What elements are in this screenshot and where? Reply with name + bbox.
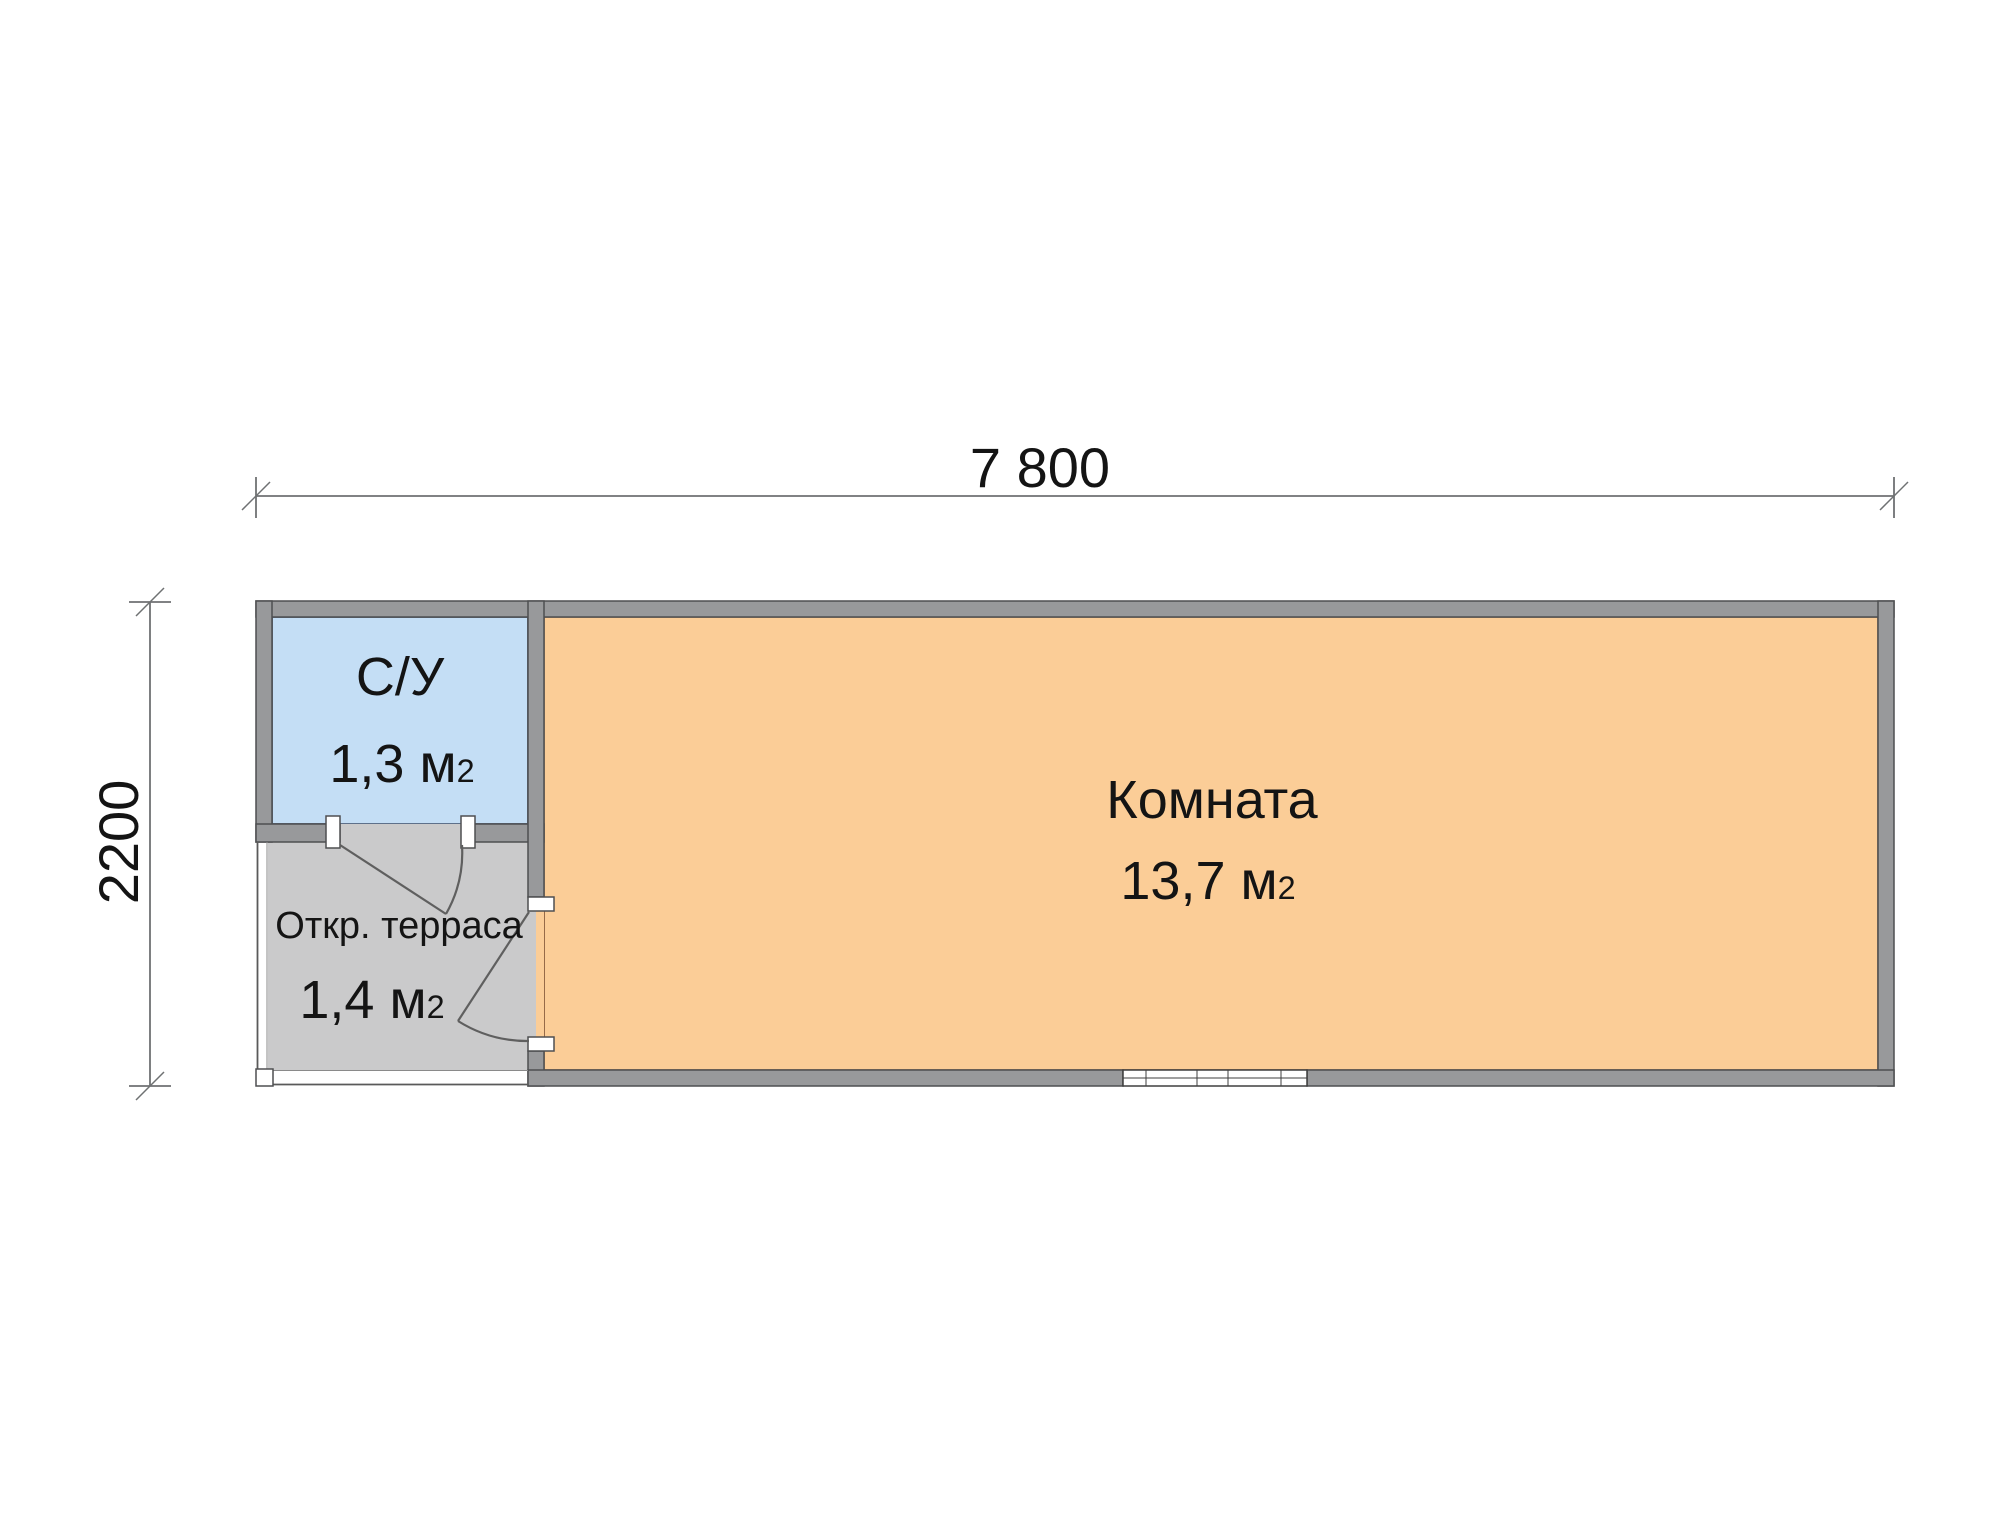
room-door-jamb-bottom — [528, 1037, 554, 1051]
room-area-value: 13,7 м — [1120, 851, 1277, 911]
terrace-corner-post — [256, 1069, 273, 1086]
wall-right — [1878, 601, 1894, 1086]
wall-bottom-right-of-window — [1307, 1070, 1894, 1086]
room-label: Комната — [1106, 773, 1317, 827]
wall-bottom-left-of-window — [528, 1070, 1123, 1086]
terrace-area-sup: 2 — [427, 989, 445, 1025]
dim-height-label: 2200 — [91, 780, 147, 905]
room-area: 13,7 м2 — [1120, 854, 1295, 908]
wall-top — [256, 601, 1894, 617]
bathroom-area-value: 1,3 м — [329, 734, 456, 794]
room-window — [1123, 1070, 1307, 1086]
room-door-opening-floor-room-side — [536, 911, 544, 1037]
room-area-sup: 2 — [1278, 870, 1296, 906]
bathroom-area-sup: 2 — [457, 753, 475, 789]
room-fills — [268, 617, 1878, 1070]
terrace-label: Откр. терраса — [275, 907, 522, 945]
dim-width-label: 7 800 — [970, 440, 1110, 496]
terrace-area-value: 1,4 м — [299, 970, 426, 1030]
bathroom-door-jamb-right — [461, 816, 475, 848]
bathroom-area: 1,3 м2 — [329, 737, 474, 791]
room-floor — [544, 617, 1878, 1070]
bathroom-door-jamb-left — [326, 816, 340, 848]
floor-plan-drawing — [0, 0, 2000, 1538]
bathroom-label: С/У — [356, 650, 444, 704]
room-door-opening-floor-terrace-side — [528, 911, 537, 1037]
room-door-jamb-top — [528, 897, 554, 911]
wall-partition-upper — [528, 601, 544, 897]
bathroom-door-opening-floor — [340, 824, 463, 842]
floor-plan: 7 800 2200 С/У 1,3 м2 Откр. терраса 1,4 … — [0, 0, 2000, 1538]
terrace-area: 1,4 м2 — [299, 973, 444, 1027]
wall-left-bathroom — [256, 601, 272, 842]
